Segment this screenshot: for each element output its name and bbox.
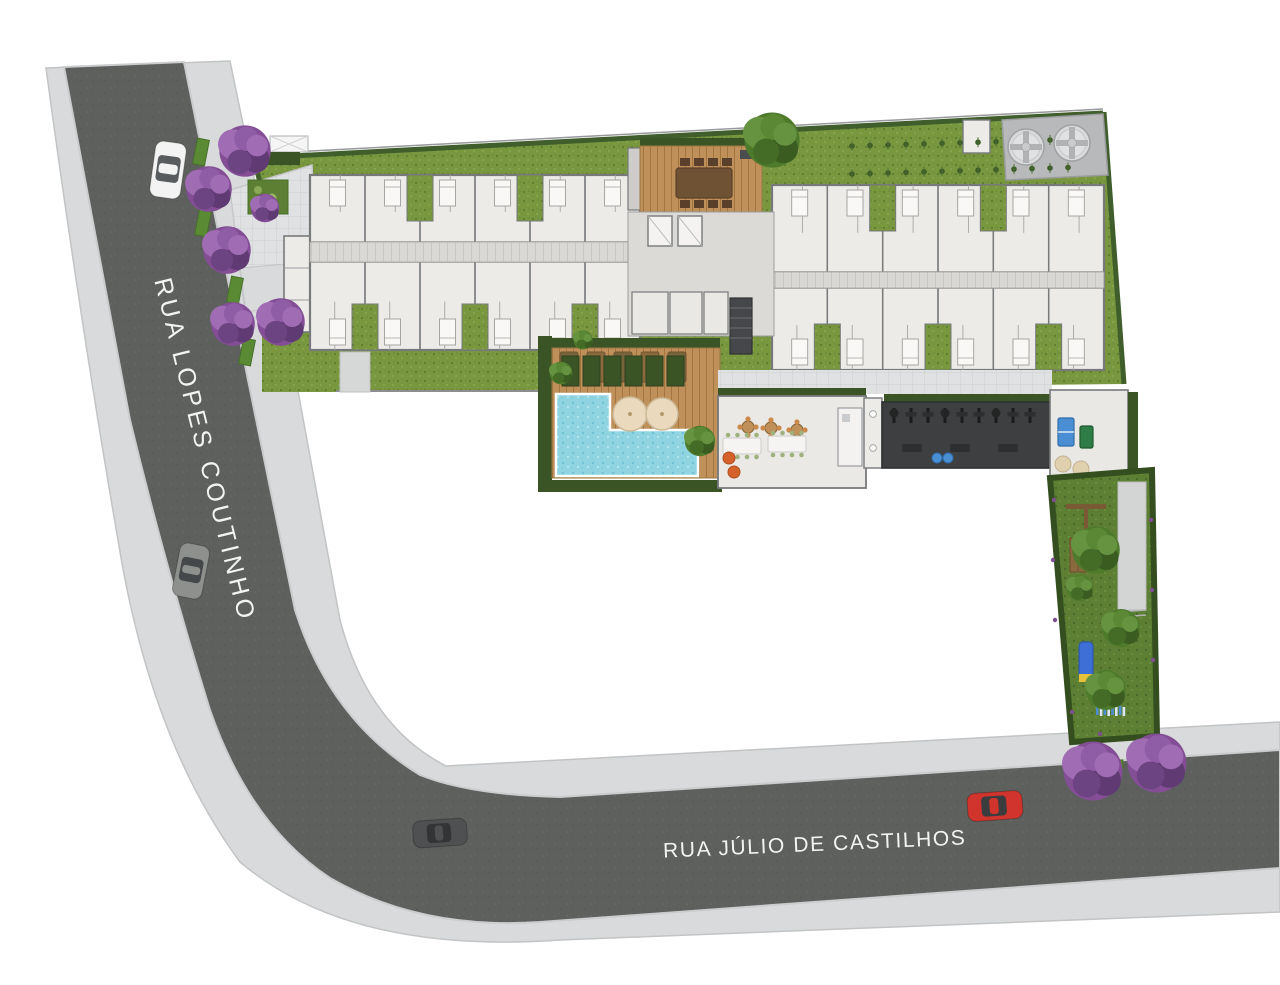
bed xyxy=(330,180,346,206)
gym-equipment-icon xyxy=(974,412,985,417)
green-tree-canopy xyxy=(577,340,586,349)
green-tree-canopy xyxy=(562,366,572,376)
pouf xyxy=(723,452,735,464)
bathrooms xyxy=(864,398,882,468)
round-table xyxy=(742,421,754,433)
purple-tree-canopy xyxy=(255,207,269,221)
long-table xyxy=(768,436,806,452)
umbrella-pole-icon xyxy=(660,412,664,416)
bed xyxy=(902,339,918,365)
flower-dot-icon xyxy=(1053,618,1057,622)
green-tree-canopy xyxy=(1071,587,1084,600)
bed xyxy=(330,319,346,345)
bed xyxy=(902,190,918,216)
chair-icon xyxy=(780,431,785,436)
flower-dot-icon xyxy=(1070,710,1074,714)
purple-tree-canopy xyxy=(211,249,234,272)
site-plan-canvas: RUA LOPES COUTINHO RUA JÚLIO DE CASTILHO… xyxy=(0,0,1280,985)
service-room xyxy=(704,292,728,334)
gym-equipment-icon xyxy=(1025,412,1036,417)
pouf xyxy=(728,466,740,478)
bed xyxy=(385,180,401,206)
gym-equipment-icon xyxy=(890,409,899,418)
green-tree-canopy xyxy=(1092,689,1111,708)
green-tree-canopy xyxy=(584,334,592,342)
hedge-gym xyxy=(884,394,1050,402)
chair-icon xyxy=(754,433,759,438)
purple-tree-canopy xyxy=(1159,744,1184,769)
green-tree-canopy xyxy=(1122,616,1138,632)
bed xyxy=(550,180,566,206)
chair-icon xyxy=(726,433,731,438)
chair-icon xyxy=(780,453,785,458)
service-room xyxy=(670,292,702,334)
sink-icon xyxy=(842,414,850,422)
flower-dot-icon xyxy=(1098,732,1102,736)
green-tree-canopy xyxy=(1097,535,1117,555)
bed xyxy=(440,319,456,345)
exercise-ball-icon xyxy=(932,453,942,463)
purple-tree-canopy xyxy=(1137,761,1165,789)
chair-icon xyxy=(776,425,781,430)
chair-icon xyxy=(754,455,759,460)
service-room xyxy=(632,292,668,334)
grass-pocket xyxy=(517,175,543,221)
chair-icon xyxy=(708,200,718,208)
stairwell xyxy=(730,298,752,354)
grass-pocket xyxy=(352,304,378,350)
green-tree-canopy xyxy=(701,431,714,444)
grass-pocket xyxy=(1036,324,1062,370)
hedge-planter xyxy=(646,356,663,386)
site-plan-svg: RUA LOPES COUTINHO RUA JÚLIO DE CASTILHO… xyxy=(0,0,1280,985)
fence-bar-icon xyxy=(1119,706,1122,715)
toilet-icon xyxy=(870,411,877,418)
toilet-icon xyxy=(870,445,877,452)
hedge-planter xyxy=(667,356,684,386)
chair-icon xyxy=(745,416,750,421)
gym xyxy=(882,402,1050,468)
green-tree-canopy xyxy=(1080,549,1103,572)
hedge-planter xyxy=(604,356,621,386)
bed xyxy=(1068,190,1084,216)
chair-icon xyxy=(722,158,732,166)
gym-equipment-icon xyxy=(1008,412,1019,417)
chair-icon xyxy=(680,200,690,208)
playground-beam xyxy=(1066,504,1106,509)
green-tree-canopy xyxy=(1108,627,1126,645)
corridor xyxy=(772,272,1104,288)
bed xyxy=(440,180,456,206)
bed xyxy=(792,190,808,216)
service-path xyxy=(340,352,370,392)
chair-icon xyxy=(680,158,690,166)
purple-tree-canopy xyxy=(282,307,302,327)
chair-icon xyxy=(771,453,776,458)
chair-icon xyxy=(708,158,718,166)
bed xyxy=(1013,190,1029,216)
bed xyxy=(385,319,401,345)
purple-tree-canopy xyxy=(1073,769,1101,797)
corridor xyxy=(310,242,640,262)
chair-icon xyxy=(735,433,740,438)
red-car xyxy=(967,790,1024,822)
umbrella-pole-icon xyxy=(628,412,632,416)
chair-icon xyxy=(735,455,740,460)
purple-tree-canopy xyxy=(246,135,268,157)
chair-icon xyxy=(760,425,765,430)
chair-icon xyxy=(771,431,776,436)
purple-tree-canopy xyxy=(266,199,278,211)
hedge-planter xyxy=(625,356,642,386)
hedge-party xyxy=(718,388,866,396)
hedge-entrance xyxy=(266,152,300,165)
bean-bag xyxy=(1055,456,1071,472)
chair-icon xyxy=(790,431,795,436)
gym-equipment-icon xyxy=(923,412,934,417)
roof-room xyxy=(963,120,990,153)
chair-icon xyxy=(745,455,750,460)
car-roof xyxy=(989,798,999,815)
gym-equipment-icon xyxy=(941,409,950,418)
gym-bench-icon xyxy=(998,444,1018,452)
chair-icon xyxy=(694,200,704,208)
water-tank xyxy=(1054,125,1090,161)
green-tree-canopy xyxy=(690,440,704,454)
gym-equipment-icon xyxy=(957,412,968,417)
green-tree-canopy xyxy=(553,372,564,383)
flower-dot-icon xyxy=(1052,498,1056,502)
chair-icon xyxy=(768,417,773,422)
flower-dot-icon xyxy=(1051,558,1055,562)
bed xyxy=(792,339,808,365)
flower-dot-icon xyxy=(1151,658,1155,662)
car-roof xyxy=(434,825,443,841)
hedge-planter xyxy=(583,356,600,386)
hedge-games-east xyxy=(1128,392,1138,478)
chair-icon xyxy=(737,424,742,429)
chair-icon xyxy=(790,453,795,458)
foosball-table xyxy=(1080,426,1093,448)
green-tree-canopy xyxy=(753,139,779,165)
purple-tree-canopy xyxy=(265,321,288,344)
hedge-pool-west xyxy=(538,336,552,492)
grass-pocket xyxy=(980,185,1006,231)
chair-icon xyxy=(799,431,804,436)
purple-tree-canopy xyxy=(227,150,251,174)
gym-bench-icon xyxy=(950,444,970,452)
chair-icon xyxy=(745,433,750,438)
exercise-ball-icon xyxy=(943,453,953,463)
bed xyxy=(495,319,511,345)
chair-icon xyxy=(794,419,799,424)
purple-tree-canopy xyxy=(193,188,215,210)
purple-tree-canopy xyxy=(210,175,229,194)
bed xyxy=(1013,339,1029,365)
purple-tree-canopy xyxy=(234,310,252,328)
grass-pocket xyxy=(462,304,488,350)
flower-dot-icon xyxy=(1150,588,1154,592)
flower-dot-icon xyxy=(1149,518,1153,522)
gym-equipment-icon xyxy=(906,412,917,417)
bed xyxy=(1068,339,1084,365)
chair-icon xyxy=(799,453,804,458)
shrub-icon xyxy=(254,186,262,194)
bed xyxy=(958,190,974,216)
green-tree-canopy xyxy=(1081,580,1092,591)
bed xyxy=(847,339,863,365)
grass-pocket xyxy=(870,185,896,231)
hedge-pool-south xyxy=(538,480,722,492)
chair-icon xyxy=(694,158,704,166)
green-tree-canopy xyxy=(773,123,796,146)
green-tree-canopy xyxy=(1107,677,1124,694)
chair-icon xyxy=(722,200,732,208)
tank-cap xyxy=(1068,139,1077,148)
dark-car xyxy=(412,818,468,849)
bed xyxy=(958,339,974,365)
bed xyxy=(495,180,511,206)
gym-equipment-icon xyxy=(992,409,1001,418)
grass-pocket xyxy=(814,324,840,370)
chair-icon xyxy=(753,424,758,429)
bed xyxy=(605,180,621,206)
purple-tree-canopy xyxy=(1095,752,1120,777)
grass-pocket xyxy=(407,175,433,221)
fence-bar-icon xyxy=(1115,707,1118,716)
gym-bench-icon xyxy=(902,444,922,452)
dining-table xyxy=(676,168,732,198)
garden-path xyxy=(1118,482,1146,610)
grass-pocket xyxy=(925,324,951,370)
hedge-deck xyxy=(640,138,762,146)
water-tank xyxy=(1008,129,1044,165)
bed xyxy=(847,190,863,216)
tank-cap xyxy=(1022,143,1031,152)
purple-tree-canopy xyxy=(228,235,248,255)
fence-bar-icon xyxy=(1123,707,1126,716)
slide xyxy=(1079,642,1093,678)
purple-tree-canopy xyxy=(218,323,239,344)
